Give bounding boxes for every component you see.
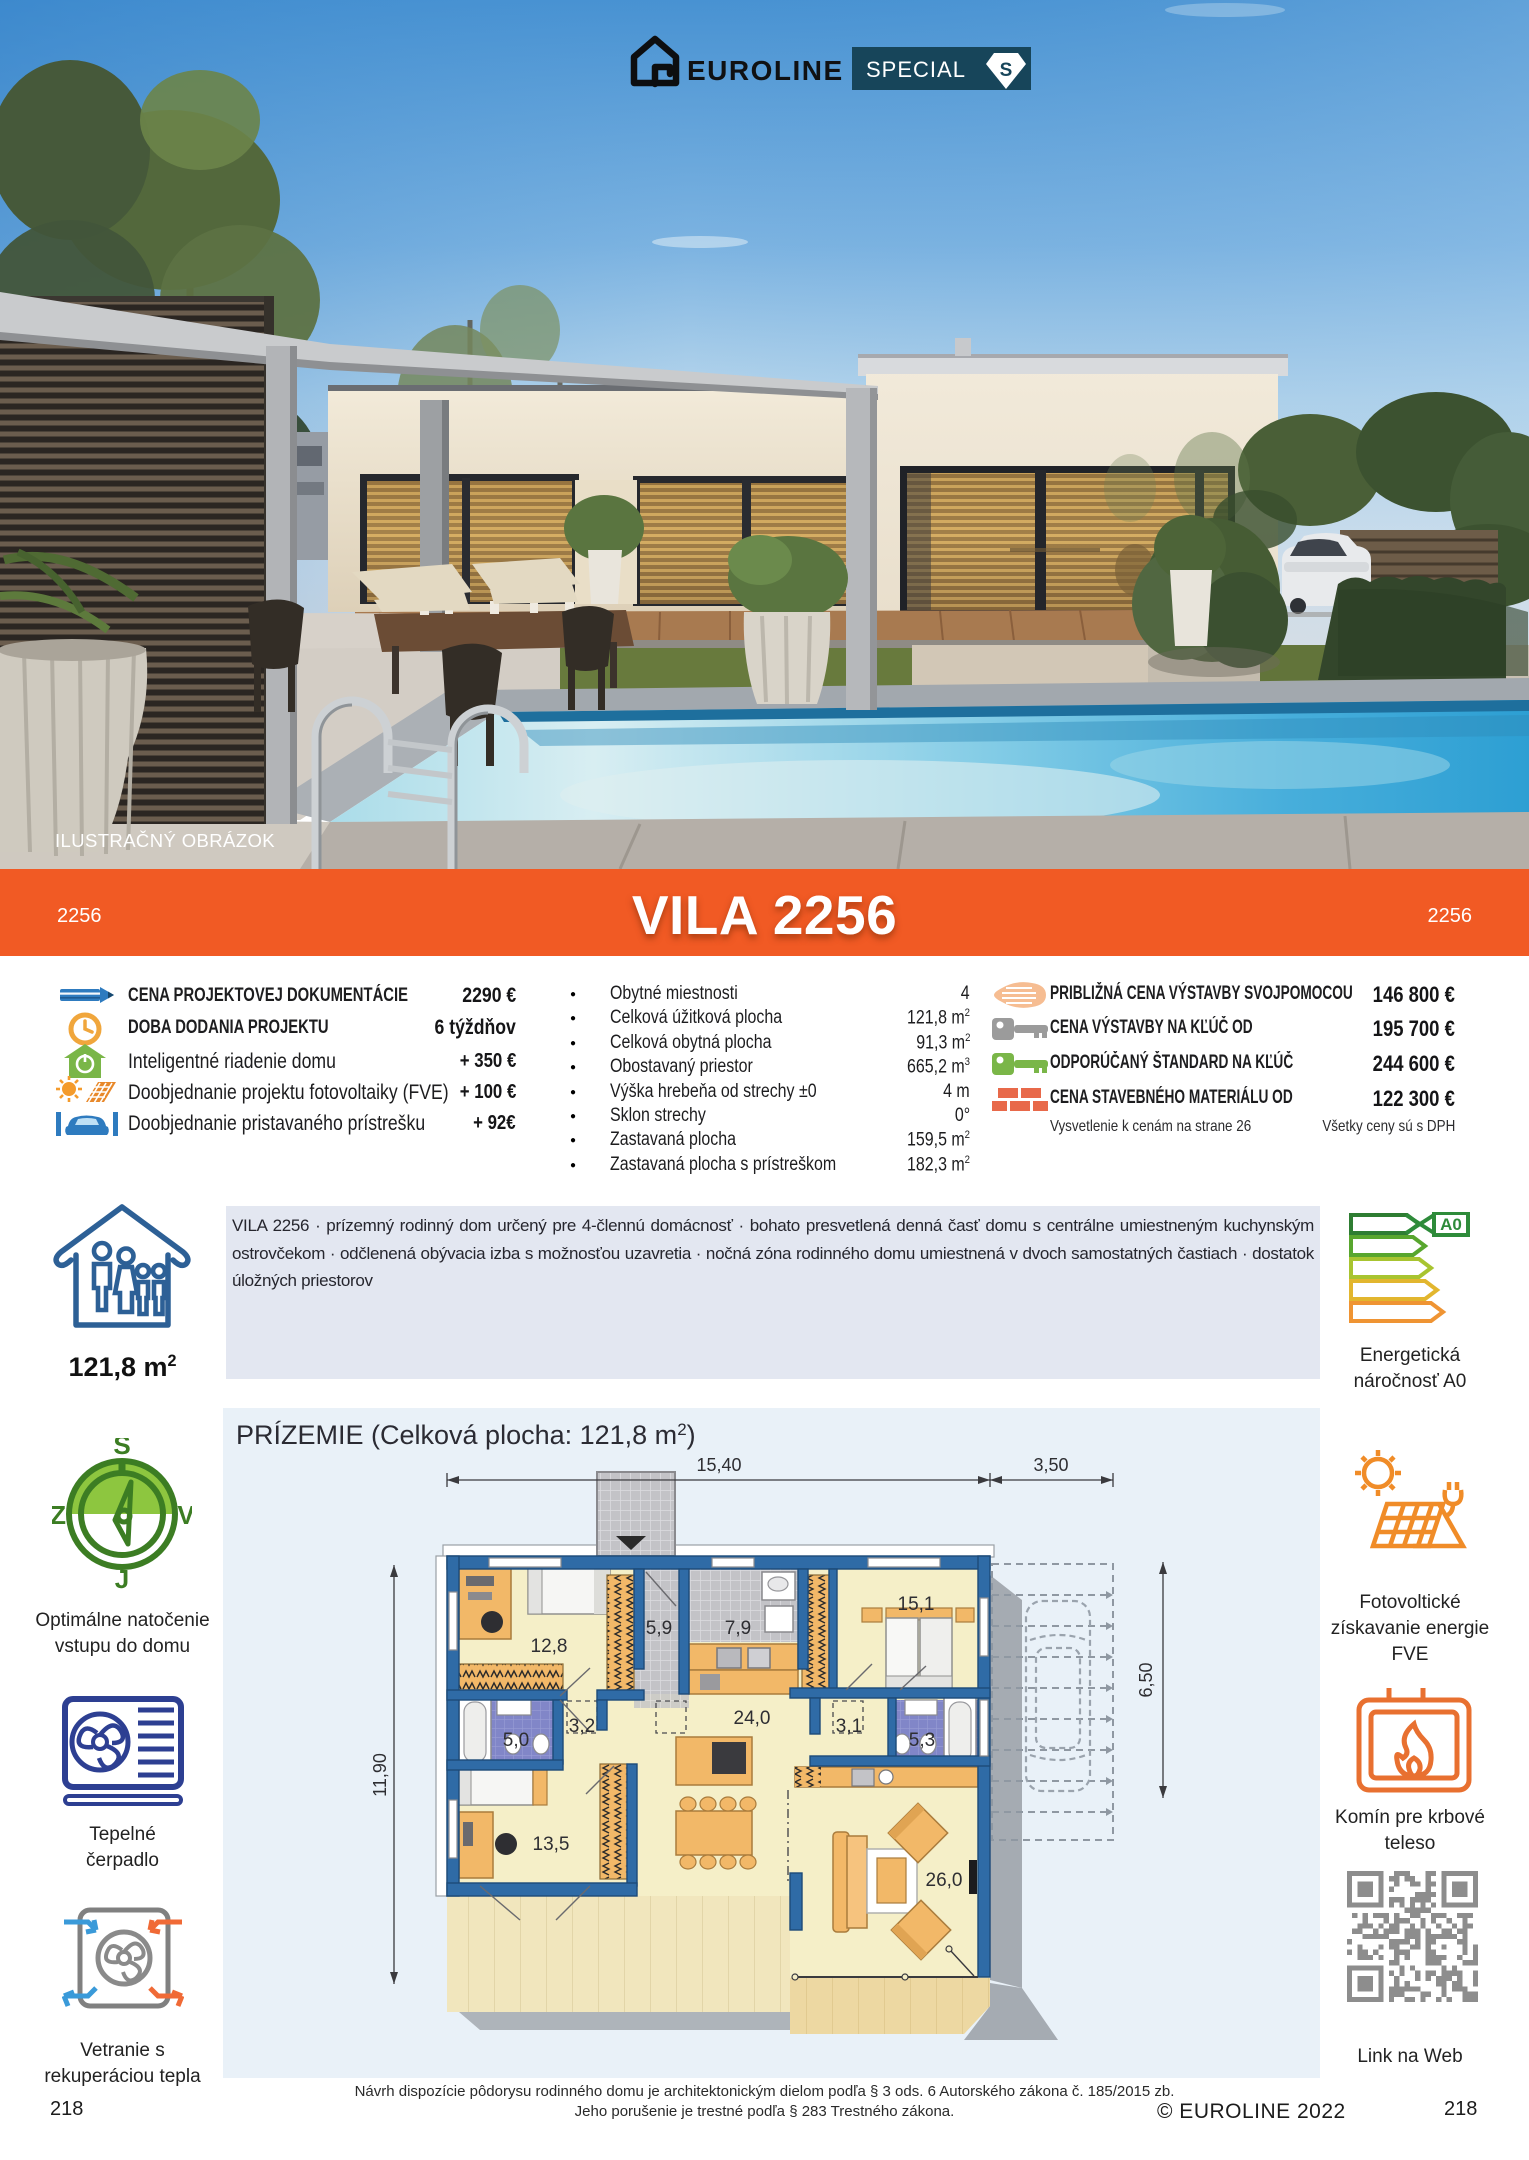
- svg-text:SPECIAL: SPECIAL: [866, 57, 966, 82]
- svg-text:5,9: 5,9: [646, 1618, 672, 1639]
- svg-text:3,2: 3,2: [569, 1716, 595, 1737]
- svg-text:Z: Z: [52, 1500, 66, 1530]
- svg-text:3,50: 3,50: [1033, 1455, 1068, 1475]
- svg-text:5,0: 5,0: [503, 1730, 529, 1751]
- svg-text:3,1: 3,1: [836, 1716, 862, 1737]
- svg-text:7,9: 7,9: [725, 1618, 751, 1639]
- svg-text:ILUSTRAČNÝ OBRÁZOK: ILUSTRAČNÝ OBRÁZOK: [55, 830, 275, 851]
- svg-text:11,90: 11,90: [370, 1753, 390, 1797]
- svg-text:26,0: 26,0: [926, 1870, 963, 1891]
- svg-text:12,8: 12,8: [531, 1636, 568, 1657]
- svg-text:6,50: 6,50: [1136, 1662, 1156, 1697]
- svg-text:A0: A0: [1440, 1215, 1462, 1234]
- svg-text:15,40: 15,40: [696, 1455, 741, 1475]
- svg-text:S: S: [1000, 60, 1013, 81]
- svg-text:15,1: 15,1: [898, 1594, 935, 1615]
- svg-text:5,3: 5,3: [909, 1730, 935, 1751]
- svg-text:13,5: 13,5: [533, 1834, 570, 1855]
- svg-text:J: J: [115, 1564, 129, 1590]
- svg-text:EUROLINE: EUROLINE: [687, 55, 844, 86]
- svg-text:24,0: 24,0: [734, 1708, 771, 1729]
- svg-text:V: V: [177, 1500, 192, 1530]
- svg-text:PRÍZEMIE (Celková plocha: 121,: PRÍZEMIE (Celková plocha: 121,8 m2): [236, 1420, 696, 1450]
- svg-text:S: S: [113, 1438, 130, 1460]
